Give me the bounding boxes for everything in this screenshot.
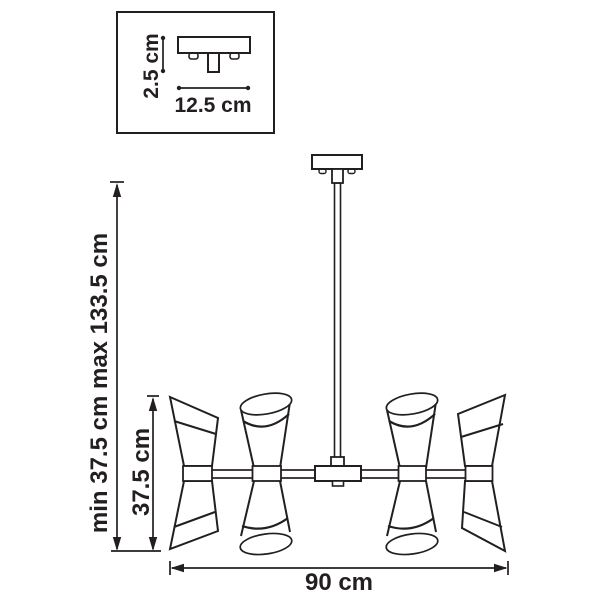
arrowhead-down-icon xyxy=(113,537,121,551)
canopy-screw-right xyxy=(348,169,355,174)
canopy-stem xyxy=(332,169,343,183)
shade-collar-cone-right xyxy=(399,466,427,481)
dim-body-height-label: 37.5 cm xyxy=(128,428,155,516)
cone-inner-rim xyxy=(243,414,289,427)
dim-dot xyxy=(246,86,250,90)
cone-inner-rim xyxy=(242,518,288,529)
cone-side xyxy=(280,481,290,532)
inset-depth-label: 2.5 cm xyxy=(140,33,163,98)
hub-nub xyxy=(333,481,344,486)
cone-bottom-opening xyxy=(385,530,439,557)
cone-side xyxy=(387,410,400,468)
technical-drawing-canvas: 2.5 cm 12.5 cm xyxy=(0,0,600,600)
cone-side xyxy=(426,481,436,532)
center-hub xyxy=(315,466,361,481)
cone-bottom-opening xyxy=(239,530,293,557)
shade-collar-cone-left xyxy=(253,466,282,481)
inset-canopy-plate xyxy=(178,37,250,53)
canopy-plate xyxy=(312,155,362,169)
arrowhead-down-icon xyxy=(149,537,157,551)
inset-stem xyxy=(208,53,219,72)
shade-collar-flat-right xyxy=(466,466,493,481)
cone-side xyxy=(426,402,436,468)
suspension-rod xyxy=(335,183,341,458)
arrowhead-left-icon xyxy=(171,564,185,572)
cone-inner-rim xyxy=(389,414,435,427)
dim-width-label: 90 cm xyxy=(305,569,373,596)
cone-side xyxy=(241,410,254,468)
chandelier-dimension-diagram: 2.5 cm 12.5 cm xyxy=(0,0,600,600)
arrowhead-up-icon xyxy=(113,183,121,197)
arrowhead-up-icon xyxy=(149,397,157,411)
arrowhead-right-icon xyxy=(494,564,508,572)
shade-lower-outline xyxy=(462,481,505,551)
inset-width-dimension xyxy=(177,86,250,90)
cone-top-opening xyxy=(239,390,294,419)
inset-width-label: 12.5 cm xyxy=(174,94,251,117)
dim-overall-height-label: min 37.5 cm max 133.5 cm xyxy=(86,233,113,533)
cone-top-opening xyxy=(385,390,440,419)
shade-lower-outline xyxy=(170,481,218,549)
shade-collar-flat-left xyxy=(183,466,212,481)
cone-side xyxy=(280,402,290,468)
chandelier-fixture xyxy=(170,155,505,558)
canopy-screw-left xyxy=(319,169,326,174)
cone-inner-rim xyxy=(388,518,434,529)
dim-dot xyxy=(177,86,181,90)
